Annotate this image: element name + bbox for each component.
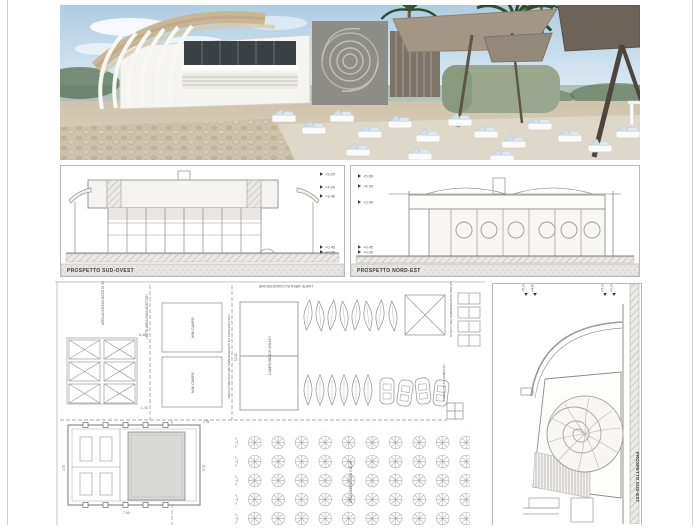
elevation-northeast-label: PROSPETTO NORD-EST [357, 268, 421, 274]
roof-fascia [409, 195, 605, 209]
mini-campo-1-label: MINI CAMPO [191, 317, 195, 338]
nautilus-shell [547, 396, 623, 472]
render-scene [60, 5, 640, 160]
building-plan [68, 423, 200, 508]
svg-text:+0.00: +0.00 [610, 284, 614, 292]
svg-text:+3.40: +3.40 [325, 194, 336, 199]
dim-bldg-right: 0.75 [202, 465, 206, 471]
elevation-northeast-panel: +5.00 +4.50 +3.40 +0.45 +0.00 PROSPETTO … [350, 165, 640, 277]
svg-text:+5.00: +5.00 [601, 284, 605, 292]
svg-text:+0.00: +0.00 [363, 250, 374, 255]
umbrella-area-label: AREA OMBRELLONI 5.00 ml [349, 461, 353, 503]
dim-bldg-left: 4.75 [62, 465, 66, 471]
roof-terrace [128, 432, 185, 500]
svg-text:+5.00: +5.00 [363, 174, 374, 179]
svg-text:+4.50: +4.50 [363, 184, 374, 189]
limit-left-label: LIMITE AREA PIANI ADOTTATI [145, 294, 149, 339]
elevation-southeast-label: PROSPETTO SUD-EST [635, 452, 640, 503]
side-wing-right [297, 188, 319, 203]
lifeguard-tower [447, 403, 463, 419]
svg-text:+5.00: +5.00 [522, 284, 526, 292]
roof-dome-right [513, 188, 593, 194]
dim-volley: 12.45 [234, 353, 238, 361]
elevation-southeast-drawing: +5.00 +4.60 +5.00 +0.00 PROSPETTO SUD-ES… [493, 284, 641, 524]
access-area-label: AREA ACCESSO MEZZI DI SOCCORSO [101, 281, 105, 325]
ground-hatch [66, 254, 339, 262]
nautical-shade-structure [405, 295, 445, 335]
dim-grid-gap: 1.76 [141, 406, 148, 410]
window-rails [108, 223, 261, 235]
building-body [429, 209, 605, 256]
elevation-southeast-panel: +5.00 +4.60 +5.00 +0.00 PROSPETTO SUD-ES… [492, 283, 642, 525]
mini-campo-2-label: MINI CAMPO [191, 372, 195, 393]
elevation-northeast-drawing: +5.00 +4.50 +3.40 +0.45 +0.00 PROSPETTO … [351, 166, 639, 276]
roof-dome-left [426, 188, 506, 194]
render-perspective-view [60, 5, 640, 160]
dim-bldg-bottom: 7.00 [123, 511, 130, 515]
site-plan-drawing: LIMITE AREA IN CONCESSIONE AREA ACCESSO … [55, 281, 485, 525]
window-band [184, 41, 296, 65]
lifeguard-label: TORRETTA SALVAMENTO [442, 364, 446, 401]
storage-lockers [458, 293, 480, 346]
roof-chimney [493, 178, 505, 194]
site-plan: LIMITE AREA IN CONCESSIONE AREA ACCESSO … [55, 281, 485, 525]
volley-label: CAMPO BEACH VOLLEY [268, 335, 272, 375]
base-steps [523, 498, 593, 522]
svg-text:+4.00: +4.00 [325, 185, 336, 190]
svg-text:+5.00: +5.00 [325, 172, 336, 177]
dim-bldg-gap: 1.78 [203, 420, 209, 424]
equipment-area-label: AREA ATTREZZATURE OMBREGGIANTI DA PIANI … [227, 314, 231, 399]
elevation-southwest-panel: +5.00 +4.00 +3.40 +0.45 +0.00 PROSPETTO … [60, 165, 345, 277]
access-platforms [67, 338, 137, 404]
kayak-row-bottom [304, 375, 450, 407]
level-markers-left: +5.00 +4.50 +3.40 +0.45 +0.00 [358, 174, 374, 255]
concession-limit-label: LIMITE AREA IN CONCESSIONE [258, 284, 313, 288]
board-frame-right [692, 0, 693, 525]
svg-text:+3.40: +3.40 [363, 200, 374, 205]
shade-structure-label: STRUTTURA OMBREGGIANTE PER ATTIVITA' NAU… [449, 281, 453, 337]
ground-hatch [356, 257, 634, 263]
level-markers-right: +5.00 +4.00 +3.40 +0.45 +0.00 [320, 172, 336, 255]
elevation-southwest-drawing: +5.00 +4.00 +3.40 +0.45 +0.00 PROSPETTO … [61, 166, 344, 276]
canopy-shadow [107, 208, 262, 220]
svg-text:+0.00: +0.00 [325, 250, 336, 255]
kayak-row-top [302, 300, 398, 332]
roof-chimney [178, 171, 190, 180]
level-markers: +5.00 +4.60 +5.00 +0.00 [522, 284, 616, 296]
board-frame-left [7, 0, 8, 525]
svg-text:+4.60: +4.60 [531, 284, 535, 292]
window-sill [182, 65, 298, 70]
elevation-southwest-label: PROSPETTO SUD-OVEST [67, 268, 134, 274]
